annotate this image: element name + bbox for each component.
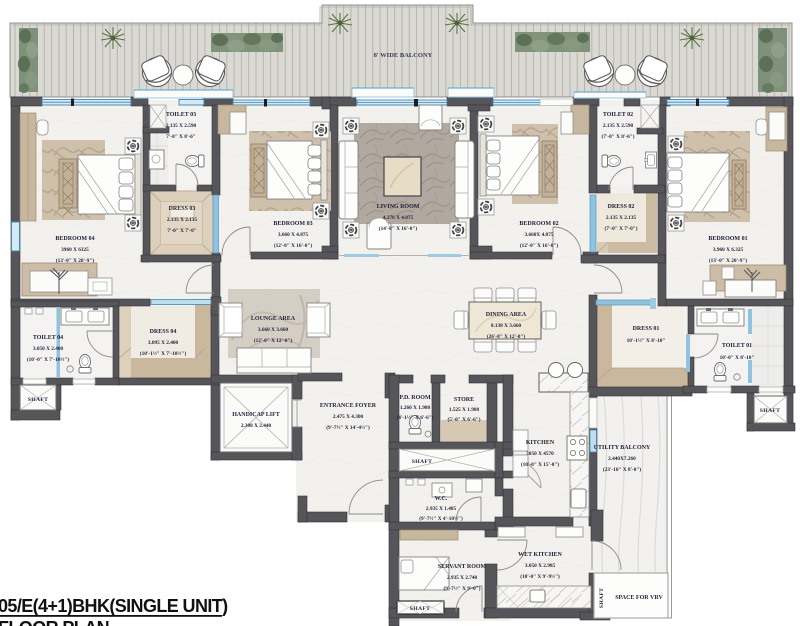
svg-text:DRESS 04: DRESS 04 xyxy=(150,329,177,335)
svg-text:SHAFT: SHAFT xyxy=(28,397,48,403)
svg-text:(4'-1½" X 6'-6"): (4'-1½" X 6'-6") xyxy=(397,414,434,421)
svg-text:8' WIDE BALCONY: 8' WIDE BALCONY xyxy=(374,52,433,59)
svg-text:(12'-0" X 16'-0"): (12'-0" X 16'-0") xyxy=(274,242,312,249)
svg-text:(23'-10" X 8'-0"): (23'-10" X 8'-0") xyxy=(603,466,641,473)
svg-text:3.660 X 4.875: 3.660 X 4.875 xyxy=(278,232,309,238)
svg-text:SHAFT: SHAFT xyxy=(760,408,780,414)
svg-text:FLOOR PLAN: FLOOR PLAN xyxy=(0,618,109,626)
svg-text:BEDROOM 03: BEDROOM 03 xyxy=(273,221,312,227)
svg-text:05/E(4+1)BHK(SINGLE UNIT): 05/E(4+1)BHK(SINGLE UNIT) xyxy=(0,596,228,616)
svg-text:BEDROOM 01: BEDROOM 01 xyxy=(708,236,747,242)
svg-text:DRESS 02: DRESS 02 xyxy=(608,204,635,210)
svg-text:(12'-0" X 16'-0"): (12'-0" X 16'-0") xyxy=(520,242,558,249)
svg-text:1.525 X 1.980: 1.525 X 1.980 xyxy=(449,407,480,413)
svg-text:(10'-1½" X 7'-10½"): (10'-1½" X 7'-10½") xyxy=(140,350,186,357)
svg-text:2.135 X 2.590: 2.135 X 2.590 xyxy=(166,123,197,129)
svg-text:P.D. ROOM: P.D. ROOM xyxy=(399,395,431,401)
svg-text:LIVING ROOM: LIVING ROOM xyxy=(377,204,420,210)
svg-text:(7'-0" X 8'-6"): (7'-0" X 8'-6") xyxy=(602,133,635,140)
svg-text:3050 X 4570: 3050 X 4570 xyxy=(526,451,554,457)
svg-text:2.935 X 1.485: 2.935 X 1.485 xyxy=(426,506,457,512)
svg-text:ENTRANCE FOYER: ENTRANCE FOYER xyxy=(320,403,377,409)
svg-text:3960 X 6325: 3960 X 6325 xyxy=(61,247,89,253)
svg-text:KITCHEN: KITCHEN xyxy=(526,440,555,446)
svg-text:(9'-7½" X 4'-10½"): (9'-7½" X 4'-10½") xyxy=(419,515,463,522)
svg-text:2.135 X 2.135: 2.135 X 2.135 xyxy=(606,215,637,221)
svg-text:(13'-0" X 20'-9"): (13'-0" X 20'-9") xyxy=(709,257,747,264)
svg-text:(7'-0" X 7'-0"): (7'-0" X 7'-0") xyxy=(605,225,638,232)
svg-text:SPACE FOR VRV: SPACE FOR VRV xyxy=(615,595,663,601)
svg-text:2.135 X 2.590: 2.135 X 2.590 xyxy=(603,123,634,129)
svg-text:LOUNGE AREA: LOUNGE AREA xyxy=(251,316,296,322)
svg-text:(9'-7½" X 9'-0"): (9'-7½" X 9'-0") xyxy=(444,585,481,592)
svg-text:7'-0" X 8'-6": 7'-0" X 8'-6" xyxy=(166,134,195,140)
svg-text:4.270 X 4.875: 4.270 X 4.875 xyxy=(383,215,414,221)
svg-text:BEDROOM 04: BEDROOM 04 xyxy=(55,236,94,242)
svg-text:HANDICAP LIFT: HANDICAP LIFT xyxy=(232,412,280,418)
svg-text:DRESS 03: DRESS 03 xyxy=(169,206,196,212)
svg-text:7'-0" X 7'-0": 7'-0" X 7'-0" xyxy=(167,228,196,234)
svg-text:2.440X7.260: 2.440X7.260 xyxy=(608,456,636,462)
svg-text:SHAFT: SHAFT xyxy=(412,459,432,465)
svg-text:(13'-0" X 20'-9"): (13'-0" X 20'-9") xyxy=(56,257,94,264)
svg-text:DRESS 01: DRESS 01 xyxy=(633,326,660,332)
svg-text:3.960 X 6.325: 3.960 X 6.325 xyxy=(713,247,744,253)
svg-text:3.095 X 2.400: 3.095 X 2.400 xyxy=(148,340,179,346)
svg-text:(26'-8" X 12'-0"): (26'-8" X 12'-0") xyxy=(487,333,525,340)
svg-text:BEDROOM 02: BEDROOM 02 xyxy=(519,221,558,227)
svg-text:10'-1½" X 8'-10": 10'-1½" X 8'-10" xyxy=(627,337,666,344)
svg-text:W.C.: W.C. xyxy=(435,496,448,502)
svg-text:TOILET 02: TOILET 02 xyxy=(603,112,633,118)
svg-text:SHAFT: SHAFT xyxy=(599,588,605,608)
svg-text:WET KITCHEN: WET KITCHEN xyxy=(518,552,562,558)
svg-text:2.935 X 2.740: 2.935 X 2.740 xyxy=(447,575,478,581)
svg-text:TOILET 01: TOILET 01 xyxy=(722,343,752,349)
svg-text:2.475 X 4.300: 2.475 X 4.300 xyxy=(333,414,364,420)
svg-text:UTILITY BALCONY: UTILITY BALCONY xyxy=(594,445,651,451)
svg-text:(14'-0" X 16'-0"): (14'-0" X 16'-0") xyxy=(379,225,417,232)
svg-text:3.660 X 3.660: 3.660 X 3.660 xyxy=(258,327,289,333)
svg-text:STORE: STORE xyxy=(454,397,474,403)
svg-text:SERVANT ROOM: SERVANT ROOM xyxy=(438,564,487,570)
svg-text:8.130 X 3.660: 8.130 X 3.660 xyxy=(491,323,522,329)
svg-text:(5'-0" X 6'-6"): (5'-0" X 6'-6") xyxy=(448,416,481,423)
svg-text:TOILET 04: TOILET 04 xyxy=(33,335,63,341)
svg-text:(9'-7½" X 14'-4½"): (9'-7½" X 14'-4½") xyxy=(326,424,370,431)
svg-text:2.300 X 2.440: 2.300 X 2.440 xyxy=(241,423,272,429)
svg-text:2.135 X 2.135: 2.135 X 2.135 xyxy=(167,217,198,223)
svg-text:3.050 X 2.985: 3.050 X 2.985 xyxy=(525,563,556,569)
svg-text:3.050 X 2.400: 3.050 X 2.400 xyxy=(33,346,64,352)
svg-text:3.660X 4.875: 3.660X 4.875 xyxy=(525,232,554,238)
svg-text:SHAFT: SHAFT xyxy=(410,606,430,612)
svg-text:(10'-0" X 15'-0"): (10'-0" X 15'-0") xyxy=(521,461,559,468)
svg-text:(12'-0" X 12'-0"): (12'-0" X 12'-0") xyxy=(254,337,292,344)
svg-text:TOILET 03: TOILET 03 xyxy=(166,112,196,118)
svg-text:DINING AREA: DINING AREA xyxy=(486,312,527,318)
svg-text:(10'-0" X 9'-9½"): (10'-0" X 9'-9½") xyxy=(520,573,560,580)
svg-text:(10'-0" X 7'-10½"): (10'-0" X 7'-10½") xyxy=(27,356,69,363)
svg-text:1.260 X 1.980: 1.260 X 1.980 xyxy=(400,405,431,411)
svg-text:10'-0" X 8'-10": 10'-0" X 8'-10" xyxy=(720,355,755,361)
